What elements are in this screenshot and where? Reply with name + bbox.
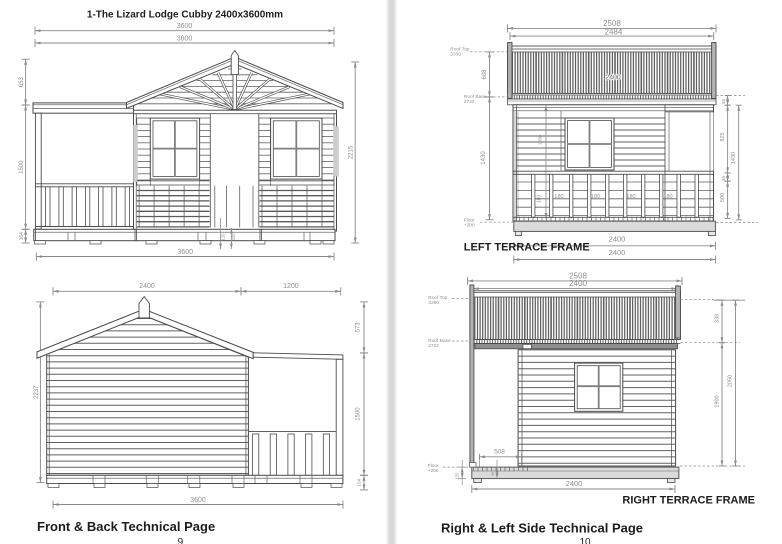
svg-text:3600: 3600 xyxy=(177,23,193,30)
svg-text:3290: 3290 xyxy=(428,300,439,306)
svg-text:180: 180 xyxy=(591,194,600,200)
svg-text:2484: 2484 xyxy=(605,28,623,37)
svg-text:1430: 1430 xyxy=(481,151,487,165)
svg-text:2400: 2400 xyxy=(605,75,621,82)
svg-text:608: 608 xyxy=(482,69,488,80)
svg-text:3330: 3330 xyxy=(450,52,461,58)
svg-text:1430: 1430 xyxy=(731,152,737,164)
svg-text:164: 164 xyxy=(19,232,25,241)
svg-text:1200: 1200 xyxy=(283,283,299,290)
svg-text:LEFT TERRACE FRAME: LEFT TERRACE FRAME xyxy=(464,242,590,254)
svg-text:2722: 2722 xyxy=(428,343,439,349)
svg-text:38: 38 xyxy=(491,472,495,476)
svg-text:2050: 2050 xyxy=(728,375,734,387)
svg-text:3600: 3600 xyxy=(177,36,193,43)
svg-text:Roof Top: Roof Top xyxy=(450,46,469,52)
svg-text:825: 825 xyxy=(720,132,726,141)
svg-text:+200: +200 xyxy=(464,223,475,229)
svg-text:1900: 1900 xyxy=(714,395,720,407)
svg-text:2400: 2400 xyxy=(566,479,583,488)
svg-text:Roof Top: Roof Top xyxy=(428,295,447,301)
svg-text:2400: 2400 xyxy=(609,234,626,243)
svg-text:180: 180 xyxy=(663,194,672,200)
svg-text:10: 10 xyxy=(579,537,591,544)
svg-text:1430: 1430 xyxy=(538,134,543,145)
svg-text:2237: 2237 xyxy=(34,385,40,399)
svg-text:9: 9 xyxy=(178,537,184,544)
svg-text:38: 38 xyxy=(721,176,726,181)
svg-text:500: 500 xyxy=(720,193,726,202)
svg-text:154: 154 xyxy=(357,478,362,486)
svg-text:2215: 2215 xyxy=(349,145,355,159)
svg-text:653: 653 xyxy=(19,76,25,87)
svg-text:Roof Base: Roof Base xyxy=(428,338,451,344)
svg-text:Right & Left Side Technical Pa: Right & Left Side Technical Page xyxy=(441,521,643,536)
svg-text:95: 95 xyxy=(721,99,726,104)
svg-text:2400: 2400 xyxy=(569,279,587,288)
svg-text:2400: 2400 xyxy=(609,248,626,257)
svg-text:320: 320 xyxy=(231,233,236,241)
svg-text:180: 180 xyxy=(537,195,543,204)
svg-text:+200: +200 xyxy=(428,468,439,474)
svg-text:180: 180 xyxy=(626,194,635,200)
svg-text:2722: 2722 xyxy=(464,99,475,105)
svg-text:180: 180 xyxy=(554,194,563,200)
svg-text:1500: 1500 xyxy=(355,407,361,421)
svg-text:573: 573 xyxy=(355,322,361,333)
svg-text:3600: 3600 xyxy=(177,249,193,256)
svg-text:2400: 2400 xyxy=(139,283,155,290)
svg-text:1500: 1500 xyxy=(19,160,25,174)
svg-text:508: 508 xyxy=(494,449,505,456)
svg-text:120: 120 xyxy=(455,472,460,480)
svg-text:Front & Back Technical Page: Front & Back Technical Page xyxy=(37,519,215,534)
svg-text:RIGHT TERRACE FRAME: RIGHT TERRACE FRAME xyxy=(622,495,755,507)
svg-text:3600: 3600 xyxy=(190,497,206,504)
svg-text:338: 338 xyxy=(714,314,720,323)
svg-text:120: 120 xyxy=(221,233,226,241)
svg-text:1-The Lizard Lodge Cubby 2400x: 1-The Lizard Lodge Cubby 2400x3600mm xyxy=(87,10,283,21)
